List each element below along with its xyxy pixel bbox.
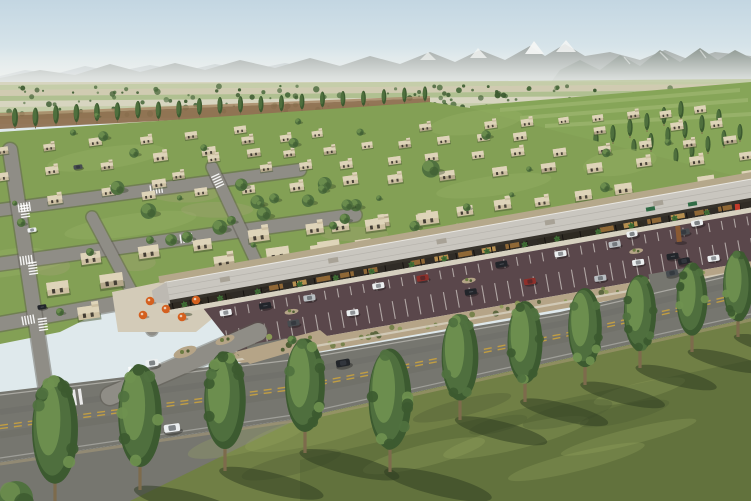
rendered-scene [0, 0, 751, 501]
aerial-render-svg [0, 0, 751, 501]
